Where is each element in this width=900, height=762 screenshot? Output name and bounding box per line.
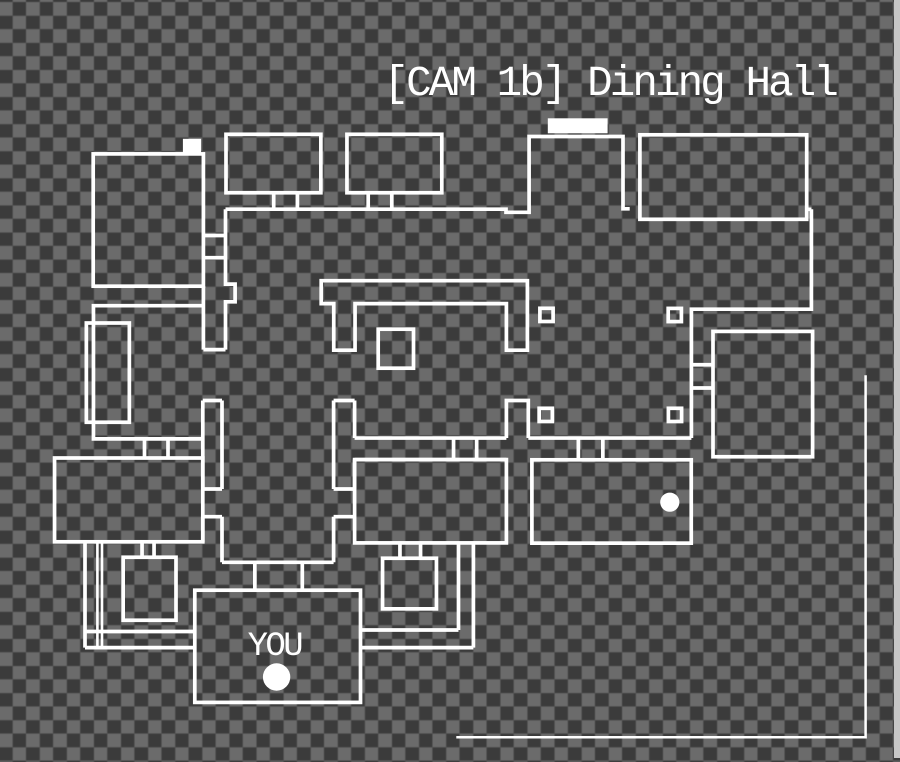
svg-text:[CAM 1b] Dining Hall: [CAM 1b] Dining Hall xyxy=(384,60,838,108)
svg-text:YOU: YOU xyxy=(248,628,303,666)
